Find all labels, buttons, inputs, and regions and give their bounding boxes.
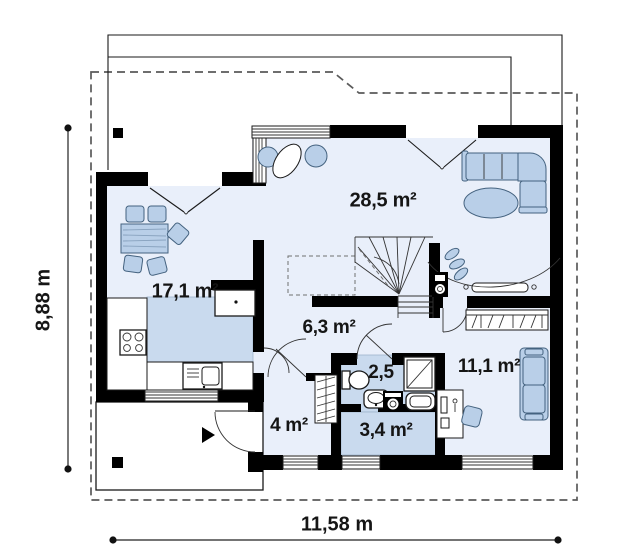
utility-window xyxy=(342,456,380,469)
bathroom-area-label: 2,5 xyxy=(368,362,394,384)
hall-area-label: 6,3 m² xyxy=(302,317,355,339)
vestibule-window xyxy=(283,456,318,469)
vestibule-area-label: 4 m² xyxy=(270,415,308,437)
kitchen-sink xyxy=(183,363,222,389)
height-dimension-label: 8,88 m xyxy=(33,269,56,331)
terrace-column xyxy=(113,128,123,138)
coat-rack xyxy=(315,375,337,423)
fridge xyxy=(215,290,255,316)
porch-column xyxy=(112,457,123,468)
dining-chair xyxy=(148,206,166,222)
boiler xyxy=(432,272,448,297)
coffee-table xyxy=(464,188,518,218)
dimension-line-bottom xyxy=(109,536,561,543)
bedroom-area-label: 11,1 m² xyxy=(458,356,520,378)
bedroom-window xyxy=(462,456,533,469)
toilet xyxy=(342,371,369,389)
washing-machine xyxy=(383,391,403,411)
wardrobe xyxy=(466,310,548,330)
width-dimension-label: 11,58 m xyxy=(301,514,373,537)
utility-tub xyxy=(406,393,435,410)
porch xyxy=(96,402,263,490)
radiator xyxy=(464,283,536,292)
desk-chair xyxy=(461,405,483,428)
dimension-line-left xyxy=(64,124,71,472)
desk xyxy=(437,390,463,438)
utility-area-label: 3,4 m² xyxy=(359,420,412,442)
floor-plan-drawing xyxy=(0,0,640,560)
dining-chair xyxy=(123,255,143,273)
stove xyxy=(120,330,146,355)
bed-sofa xyxy=(520,348,548,420)
kitchen-area-label: 17,1 m² xyxy=(152,281,219,304)
shower xyxy=(404,357,435,391)
pouf xyxy=(305,145,327,167)
living-room-area-label: 28,5 m² xyxy=(350,190,417,213)
kitchen-window xyxy=(145,389,218,401)
dining-table xyxy=(121,224,168,253)
dining-chair xyxy=(126,206,144,222)
floor-plan: 28,5 m² 17,1 m² 6,3 m² 2,5 3,4 m² 11,1 m… xyxy=(0,0,640,560)
